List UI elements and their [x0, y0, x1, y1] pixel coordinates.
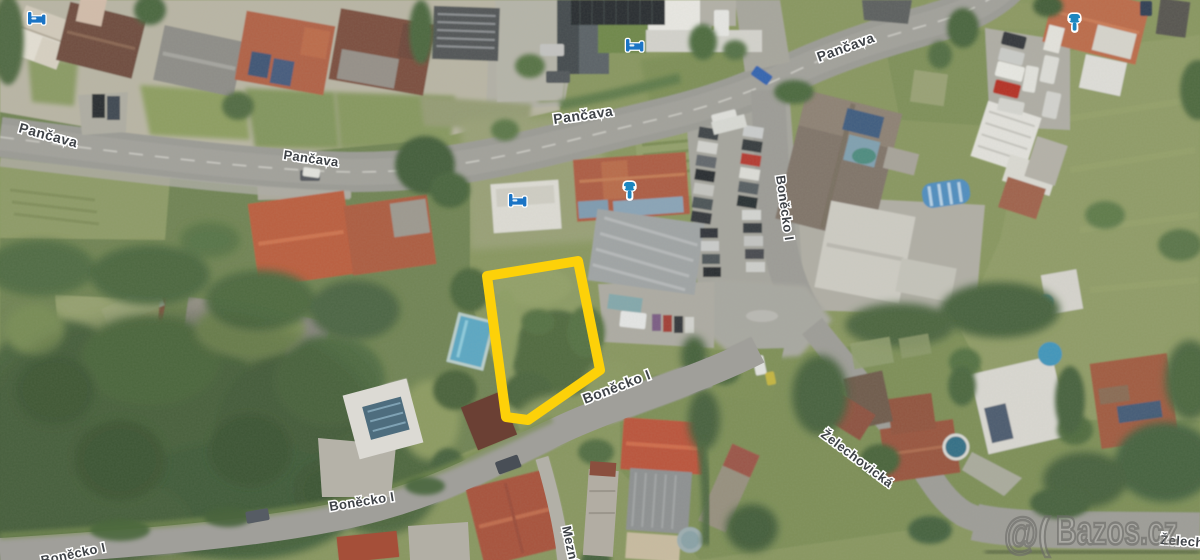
svg-text:@(: @( [1004, 509, 1050, 558]
svg-text:Bazos.cz: Bazos.cz [1056, 509, 1178, 553]
